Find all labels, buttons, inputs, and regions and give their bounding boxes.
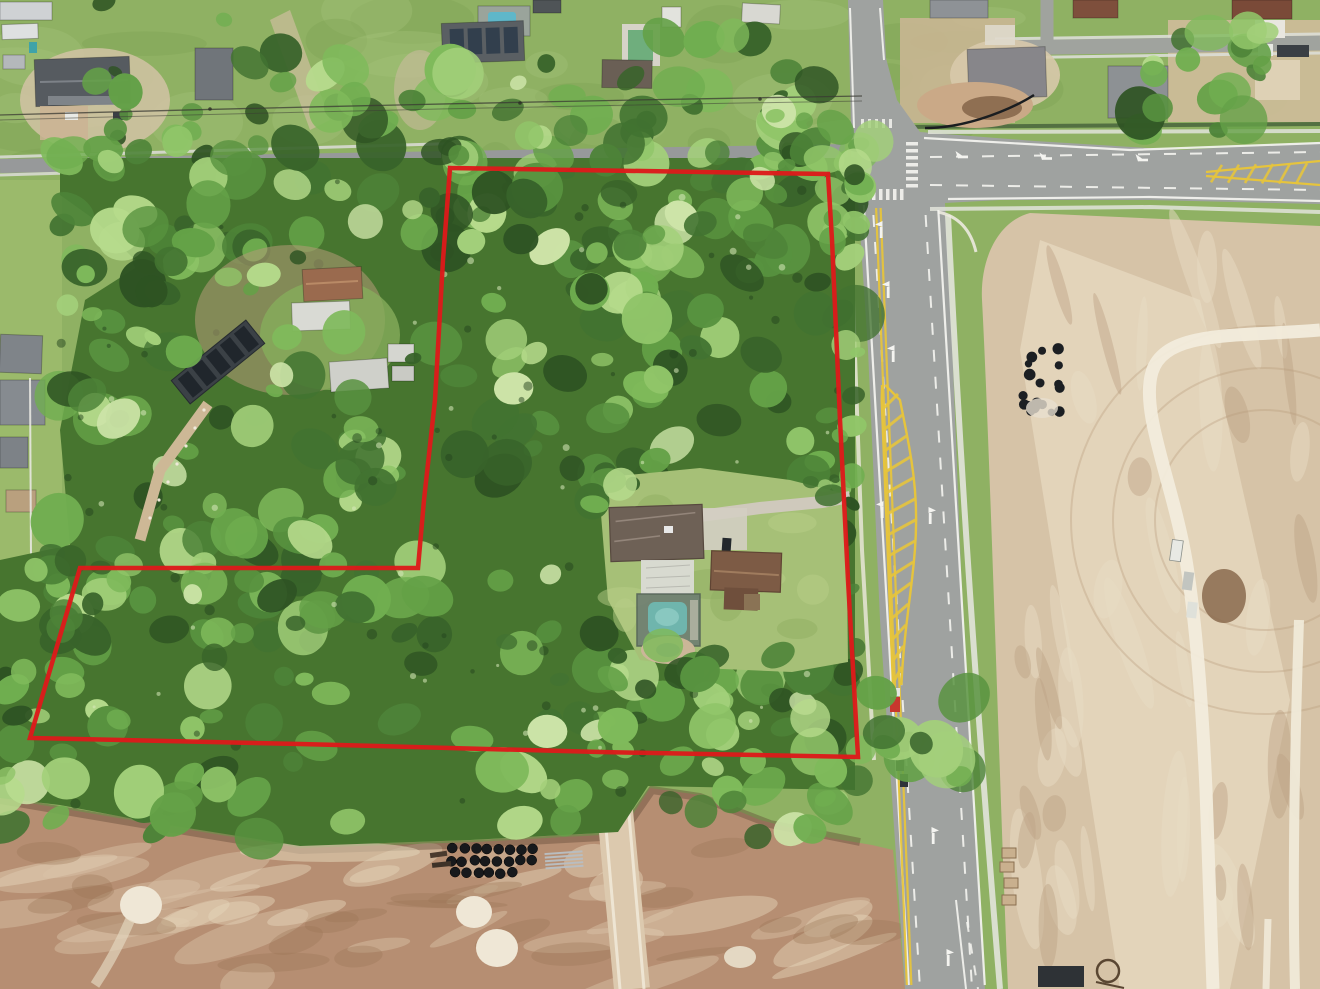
dirt-driveway	[40, 106, 88, 140]
shed	[392, 366, 414, 381]
dirt-mound	[1202, 569, 1246, 623]
pallet	[1002, 895, 1016, 905]
construction-dirt-right	[982, 206, 1320, 989]
roof-vent	[664, 526, 673, 533]
work-truck-trailer	[1277, 45, 1309, 57]
house	[533, 0, 561, 13]
mobile-home	[2, 23, 39, 39]
sand-patch	[120, 886, 162, 924]
aerial-photo-canvas	[0, 0, 1320, 989]
shed	[742, 3, 781, 24]
house	[0, 437, 28, 468]
house	[0, 334, 43, 373]
work-vehicle	[1186, 602, 1198, 619]
aerial-photo	[0, 0, 1320, 989]
pallet	[1002, 848, 1016, 858]
house	[195, 48, 233, 100]
fence	[30, 378, 31, 560]
house	[1073, 0, 1118, 18]
shed	[3, 55, 25, 69]
main-house	[609, 504, 704, 561]
portable-toilet	[29, 42, 37, 53]
pallet	[1000, 862, 1014, 872]
equipment-trailer	[1038, 966, 1084, 987]
pallet	[1004, 878, 1018, 888]
work-vehicle	[1170, 539, 1184, 561]
deck	[744, 594, 760, 610]
house	[930, 0, 988, 18]
mobile-home	[0, 2, 52, 20]
